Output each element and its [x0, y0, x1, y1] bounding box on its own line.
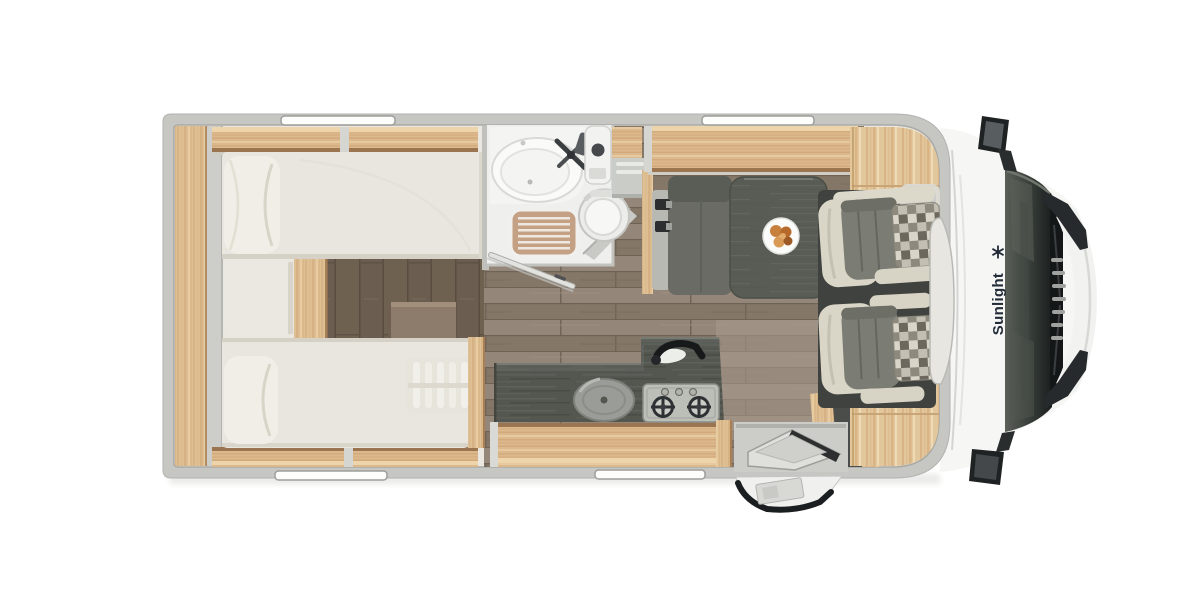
svg-text:Sunlight: Sunlight — [990, 273, 1007, 335]
